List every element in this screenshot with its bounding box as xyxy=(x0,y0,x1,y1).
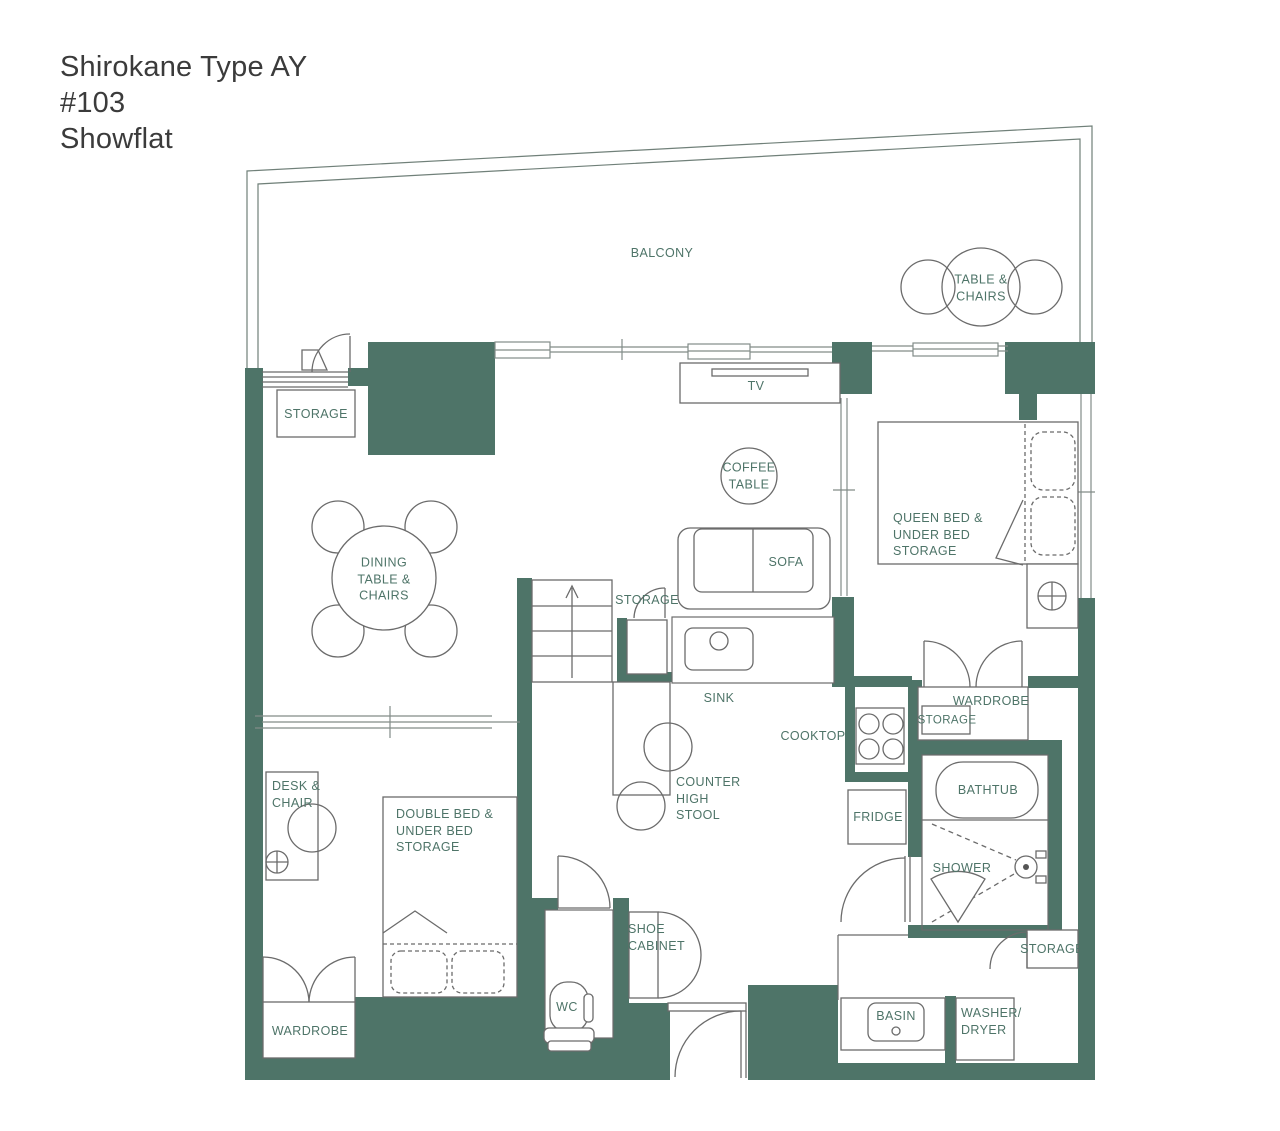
wardrobe-right xyxy=(918,641,1028,740)
double-bed xyxy=(383,797,517,997)
floor-plan-drawing xyxy=(0,0,1280,1131)
basin xyxy=(841,998,945,1050)
shower xyxy=(931,824,1046,922)
shoe-cabinet xyxy=(629,912,701,998)
wc-door xyxy=(558,856,610,908)
desk-chair xyxy=(266,772,336,880)
plan-title: Shirokane Type AY #103 Showflat xyxy=(60,50,307,158)
bathroom-door xyxy=(841,856,910,922)
fridge xyxy=(848,790,906,844)
bathtub xyxy=(936,762,1038,818)
counter-high-stool xyxy=(613,682,692,830)
sofa xyxy=(678,528,830,609)
balcony-outline xyxy=(247,126,1092,372)
coffee-table xyxy=(721,448,777,504)
wc-toilet xyxy=(544,982,594,1051)
entrance-door xyxy=(668,1003,746,1078)
wardrobe-left xyxy=(263,957,355,1058)
tv-unit xyxy=(680,363,840,403)
balcony-table-chairs xyxy=(901,248,1062,326)
stairs xyxy=(532,580,612,682)
floor-plan: Shirokane Type AY #103 Showflat BALCONY … xyxy=(0,0,1280,1131)
balcony-door xyxy=(262,334,350,387)
kitchen-sink xyxy=(685,628,753,670)
storage-top-box xyxy=(277,390,355,437)
washer-dryer xyxy=(956,998,1014,1060)
dining-table-chairs xyxy=(312,501,457,657)
stair-storage-closet xyxy=(627,588,667,674)
queen-bed xyxy=(878,422,1078,628)
cooktop xyxy=(856,708,904,764)
